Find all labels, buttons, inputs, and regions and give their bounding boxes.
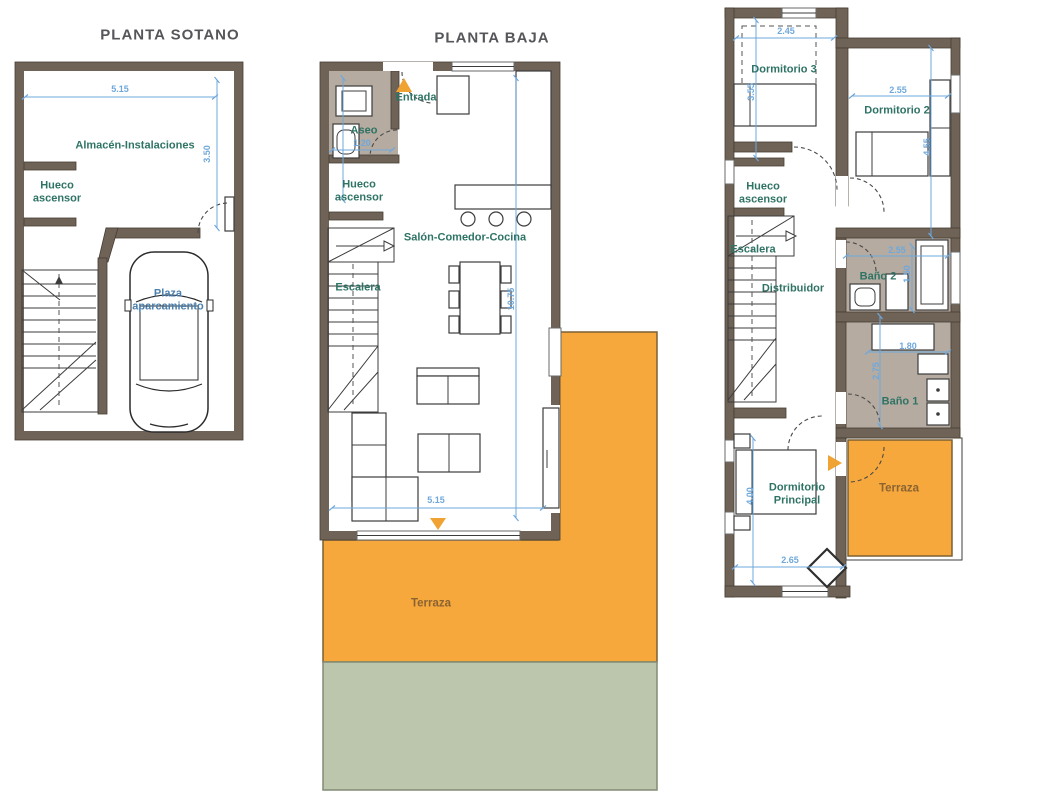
dining-table <box>449 262 511 334</box>
staircase-alta <box>728 216 796 402</box>
window <box>725 440 734 462</box>
window <box>725 160 734 184</box>
aseo-toilet <box>333 124 359 158</box>
tv-table <box>418 434 480 472</box>
window <box>725 512 734 534</box>
bed-principal <box>734 434 816 530</box>
plan-alta-drawing <box>725 8 962 598</box>
door-leaf <box>225 197 234 231</box>
stool <box>489 212 503 226</box>
wardrobe-dashed <box>742 26 816 84</box>
bed-dorm3 <box>734 84 816 126</box>
plan-sotano-drawing <box>15 62 243 440</box>
stool <box>517 212 531 226</box>
window <box>951 252 960 304</box>
stool <box>461 212 475 226</box>
aseo-sink <box>336 86 372 116</box>
window <box>549 328 561 376</box>
terrace-upper <box>848 440 952 556</box>
sofa <box>417 368 479 404</box>
floor-plan-sheet: PLANTA SOTANO PLANTA BAJA Almacén-Instal… <box>0 0 1063 800</box>
garden <box>323 662 657 790</box>
floor-plan-linework <box>0 0 1063 800</box>
plan-baja-drawing <box>320 62 657 790</box>
bed-dorm2 <box>856 132 928 176</box>
sliding-door <box>543 408 559 508</box>
window <box>951 75 960 113</box>
car-icon <box>125 252 213 432</box>
